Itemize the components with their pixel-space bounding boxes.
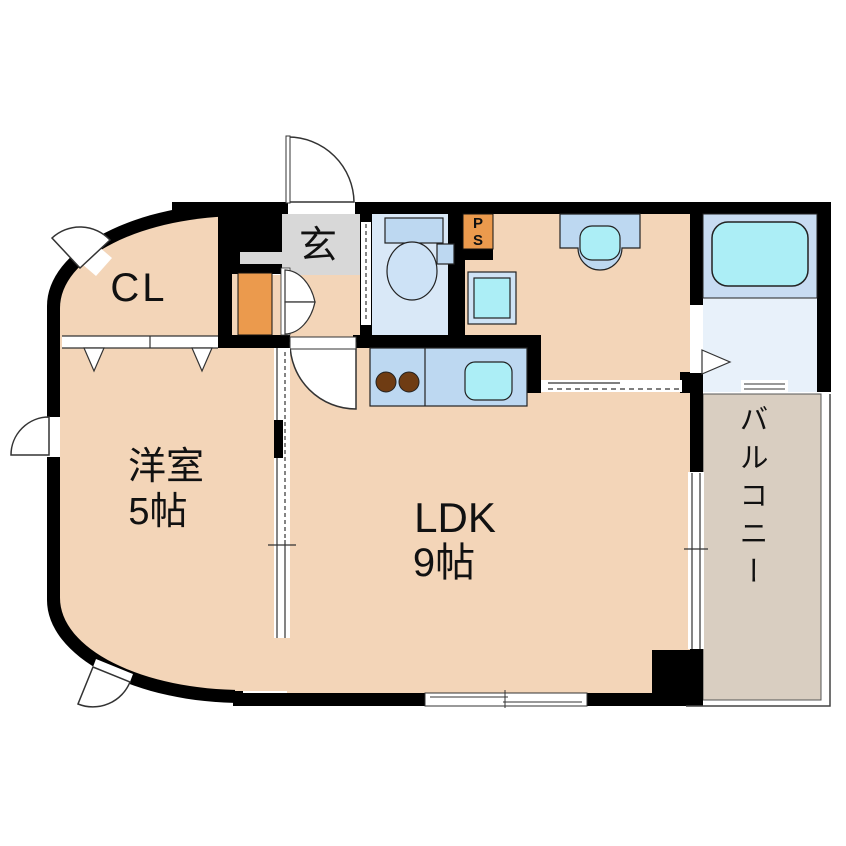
toilet-sliding-door bbox=[361, 222, 371, 325]
kitchen-side-wall bbox=[527, 340, 541, 393]
hall-bottom-wall-right bbox=[353, 335, 541, 348]
balcony-label: バルコニー bbox=[714, 404, 766, 674]
hall-bottom-wall-left bbox=[218, 335, 290, 348]
kitchen-sink-icon bbox=[465, 362, 512, 400]
pipe-space-label: P S bbox=[463, 215, 493, 249]
floorplan-canvas: CL 玄 P S 洋室 5帖 LDK 9帖 バルコニー bbox=[0, 0, 846, 846]
pipe-space-label-s: S bbox=[463, 232, 493, 249]
ldk-bottom-window bbox=[425, 690, 587, 708]
washing-machine-pan-icon bbox=[468, 272, 516, 324]
hall-door-leaf bbox=[290, 337, 356, 349]
kitchen-counter-icon bbox=[370, 348, 527, 406]
entrance-door-gap bbox=[288, 202, 355, 214]
ps-bottom-wall bbox=[460, 248, 493, 260]
entrance-label: 玄 bbox=[290, 226, 346, 268]
entrance-step-strip bbox=[240, 252, 284, 264]
pipe-space-label-p: P bbox=[463, 215, 493, 232]
closet-door-strip bbox=[62, 336, 218, 348]
entrance-door-arc bbox=[288, 137, 354, 202]
washroom-sliding-door bbox=[541, 380, 682, 392]
stove-burner-icon bbox=[376, 372, 396, 392]
ldk-size: 9帖 bbox=[382, 541, 506, 585]
western-room-size: 5帖 bbox=[96, 492, 220, 534]
bottom-right-step-wall bbox=[652, 650, 703, 695]
left-window-arc bbox=[11, 417, 49, 455]
shoe-cabinet bbox=[238, 273, 272, 335]
western-room-label: 洋室 bbox=[104, 447, 228, 489]
bath-window bbox=[741, 380, 788, 393]
stove-burner-icon bbox=[399, 372, 419, 392]
right-wall bbox=[817, 202, 831, 392]
entrance-door-leaf bbox=[286, 136, 290, 203]
closet-label: CL bbox=[96, 266, 182, 310]
balcony-wall-upper bbox=[690, 392, 703, 474]
ldk-label: LDK bbox=[390, 495, 520, 541]
bathtub-icon bbox=[703, 214, 817, 298]
closet-right-wall bbox=[218, 204, 232, 348]
